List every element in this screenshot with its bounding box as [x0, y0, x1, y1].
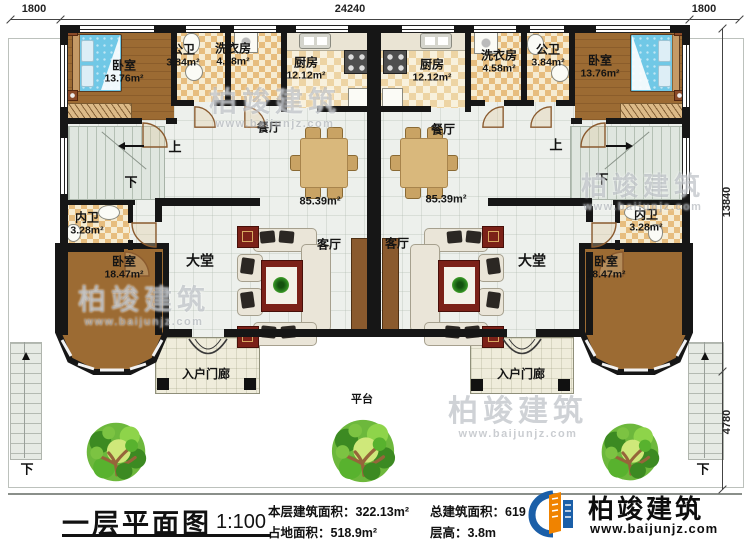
stair-arrow — [124, 145, 144, 147]
wardrobe — [66, 103, 132, 119]
corner-table-inlay — [242, 231, 253, 242]
wall-exterior-bottom — [536, 329, 582, 337]
label-stairs-up-left: 上 — [168, 137, 181, 156]
wall-interior — [381, 106, 431, 112]
dim-right-offset: 1800 — [684, 3, 724, 15]
dim-left-offset: 1800 — [14, 3, 54, 15]
door-swing — [194, 106, 216, 128]
sofa-cushion — [240, 257, 255, 275]
sofa-chaise — [301, 244, 331, 332]
sofa-chaise — [410, 244, 440, 332]
wall-interior — [155, 206, 162, 222]
window — [80, 25, 154, 33]
logo-icon — [527, 489, 581, 539]
dimension-line-top — [10, 19, 740, 20]
floor-plan-canvas: 卧室 13.76m² 公卫 3.84m² 洗衣房 4.58m² 厨房 12.12… — [0, 0, 750, 543]
wall-interior — [155, 198, 260, 206]
wall-interior — [586, 206, 593, 222]
wall-interior — [569, 25, 575, 106]
wall-interior — [624, 247, 688, 252]
wall-interior — [317, 106, 367, 112]
stairs-arrow-up — [22, 352, 30, 360]
label-kitchen-left: 厨房 12.12m² — [286, 56, 325, 83]
bed-pillow — [81, 40, 94, 62]
window — [402, 25, 454, 33]
label-platform: 平台 — [351, 393, 373, 406]
tree — [83, 420, 149, 484]
label-unit-area-left: 85.39m² — [300, 195, 341, 208]
wall-interior — [60, 200, 135, 205]
dim-platform-depth: 4780 — [721, 400, 733, 444]
wall-interior — [266, 100, 281, 106]
label-outdoor-stairs-down-right: 下 — [696, 459, 709, 478]
plant — [452, 277, 468, 293]
bed-pillow — [658, 40, 671, 62]
sofa-cushion — [486, 291, 501, 309]
sofa-set-right — [408, 226, 504, 346]
wardrobe — [620, 103, 686, 119]
corner-table — [482, 226, 504, 248]
wall-exterior-bottom — [224, 329, 373, 337]
stat-floor-area: 本层建筑面积：322.13m² — [268, 501, 409, 520]
bed — [630, 34, 680, 92]
label-kitchen-right: 厨房 12.12m² — [412, 58, 451, 85]
door-swing — [142, 122, 168, 148]
wall-interior — [521, 25, 527, 106]
label-stairs-down-right: 下 — [595, 169, 608, 188]
window — [530, 25, 564, 33]
window — [474, 25, 516, 33]
window — [186, 25, 220, 33]
dining-table — [300, 138, 348, 188]
tv-cabinet — [382, 238, 399, 336]
wall-interior — [615, 200, 620, 223]
label-inner-bath-right: 内卫 3.28m² — [629, 208, 662, 235]
sofa-cushion — [447, 230, 463, 243]
tree — [598, 421, 662, 483]
wall-interior — [177, 100, 194, 106]
sofa-cushion — [259, 230, 275, 244]
drawing-scale: 1:100 — [216, 511, 266, 534]
label-public-bath-left: 公卫 3.84m² — [166, 43, 199, 70]
bed-headboard — [73, 35, 80, 91]
dim-building-depth: 13840 — [721, 177, 733, 227]
label-public-bath-right: 公卫 3.84m² — [531, 43, 564, 70]
wall-party-center — [367, 25, 381, 337]
porch-arch — [502, 338, 542, 360]
label-porch-left: 入户门廊 — [182, 367, 230, 381]
kitchen-sink — [420, 33, 452, 49]
label-dining-left: 餐厅 — [257, 117, 281, 136]
label-bedroom-top-left: 卧室 13.76m² — [104, 59, 143, 86]
wall-interior — [556, 100, 573, 106]
label-bedroom-top-right: 卧室 13.76m² — [580, 54, 619, 81]
corner-table-inlay — [488, 231, 499, 242]
dining-table — [400, 138, 448, 188]
sofa-cushion — [279, 230, 295, 243]
door-swing — [530, 106, 552, 128]
wall-exterior-bottom — [373, 329, 507, 337]
label-outdoor-stairs-down-left: 下 — [20, 459, 33, 478]
fridge — [348, 88, 369, 108]
window — [296, 25, 348, 33]
stove — [344, 50, 368, 74]
bed-pillow — [658, 65, 671, 87]
wall-interior — [214, 100, 246, 106]
label-living-left: 客厅 — [317, 234, 341, 253]
wall-interior — [613, 200, 688, 205]
wall-interior — [488, 198, 592, 206]
label-laundry-left: 洗衣房 4.58m² — [215, 42, 251, 69]
label-hall-left: 大堂 — [186, 253, 214, 270]
stair-arrow-head — [118, 142, 125, 150]
stair-arrow — [606, 145, 626, 147]
wall-exterior-bottom — [166, 329, 192, 337]
label-stairs-down-left: 下 — [124, 172, 137, 191]
sofa-cushion — [240, 291, 255, 309]
kitchen-sink — [299, 33, 331, 49]
label-bedroom-bottom-right: 卧室 18.47m² — [586, 255, 625, 282]
bed-blanket — [632, 35, 651, 90]
window — [682, 138, 690, 194]
tv-cabinet — [351, 238, 368, 336]
logo-site: www.baijunjz.com — [590, 521, 718, 536]
window — [596, 25, 670, 33]
label-dining-right: 餐厅 — [431, 119, 455, 138]
label-porch-right: 入户门廊 — [497, 367, 545, 381]
nightstand — [67, 90, 78, 101]
label-inner-bath-left: 内卫 3.28m² — [70, 211, 103, 238]
plant — [273, 277, 289, 293]
door-swing — [591, 222, 617, 248]
sofa-cushion — [486, 257, 501, 275]
tree — [328, 417, 398, 485]
porch-column — [244, 378, 256, 390]
stairs-arrow-up — [701, 352, 709, 360]
wall-interior — [465, 25, 471, 112]
label-hall-right: 大堂 — [518, 253, 546, 270]
window — [60, 45, 68, 107]
porch-column — [558, 379, 570, 391]
wall-interior — [128, 200, 133, 223]
dim-building-width: 24240 — [320, 3, 380, 15]
label-laundry-right: 洗衣房 4.58m² — [481, 49, 517, 76]
bed-headboard — [672, 35, 679, 91]
porch-column — [471, 379, 483, 391]
window — [60, 138, 68, 194]
title-underline — [62, 534, 270, 537]
stat-footprint: 占地面积：518.9m² — [268, 522, 377, 541]
wall-interior — [606, 118, 688, 124]
corner-table — [237, 226, 259, 248]
window — [682, 45, 690, 107]
door-swing — [482, 106, 504, 128]
door-swing — [131, 222, 157, 248]
stair-arrow-head — [626, 142, 633, 150]
label-unit-area-right: 85.39m² — [426, 193, 467, 206]
label-living-right: 客厅 — [385, 233, 409, 252]
door-swing — [580, 122, 606, 148]
wall-interior — [155, 252, 162, 335]
wall-interior — [60, 247, 124, 252]
bed-pillow — [81, 65, 94, 87]
sofa-cushion — [465, 230, 481, 244]
wall-interior — [60, 118, 142, 124]
fridge — [382, 88, 403, 108]
porch-column — [157, 378, 169, 390]
stove — [383, 50, 407, 74]
label-stairs-up-right: 上 — [549, 135, 562, 154]
porch-arch — [188, 338, 228, 360]
label-bedroom-bottom-left: 卧室 18.47m² — [104, 255, 143, 282]
stat-total-area: 总建筑面积：619 — [430, 501, 526, 520]
stat-storey-height: 层高：3.8m — [430, 522, 496, 541]
window — [234, 25, 276, 33]
